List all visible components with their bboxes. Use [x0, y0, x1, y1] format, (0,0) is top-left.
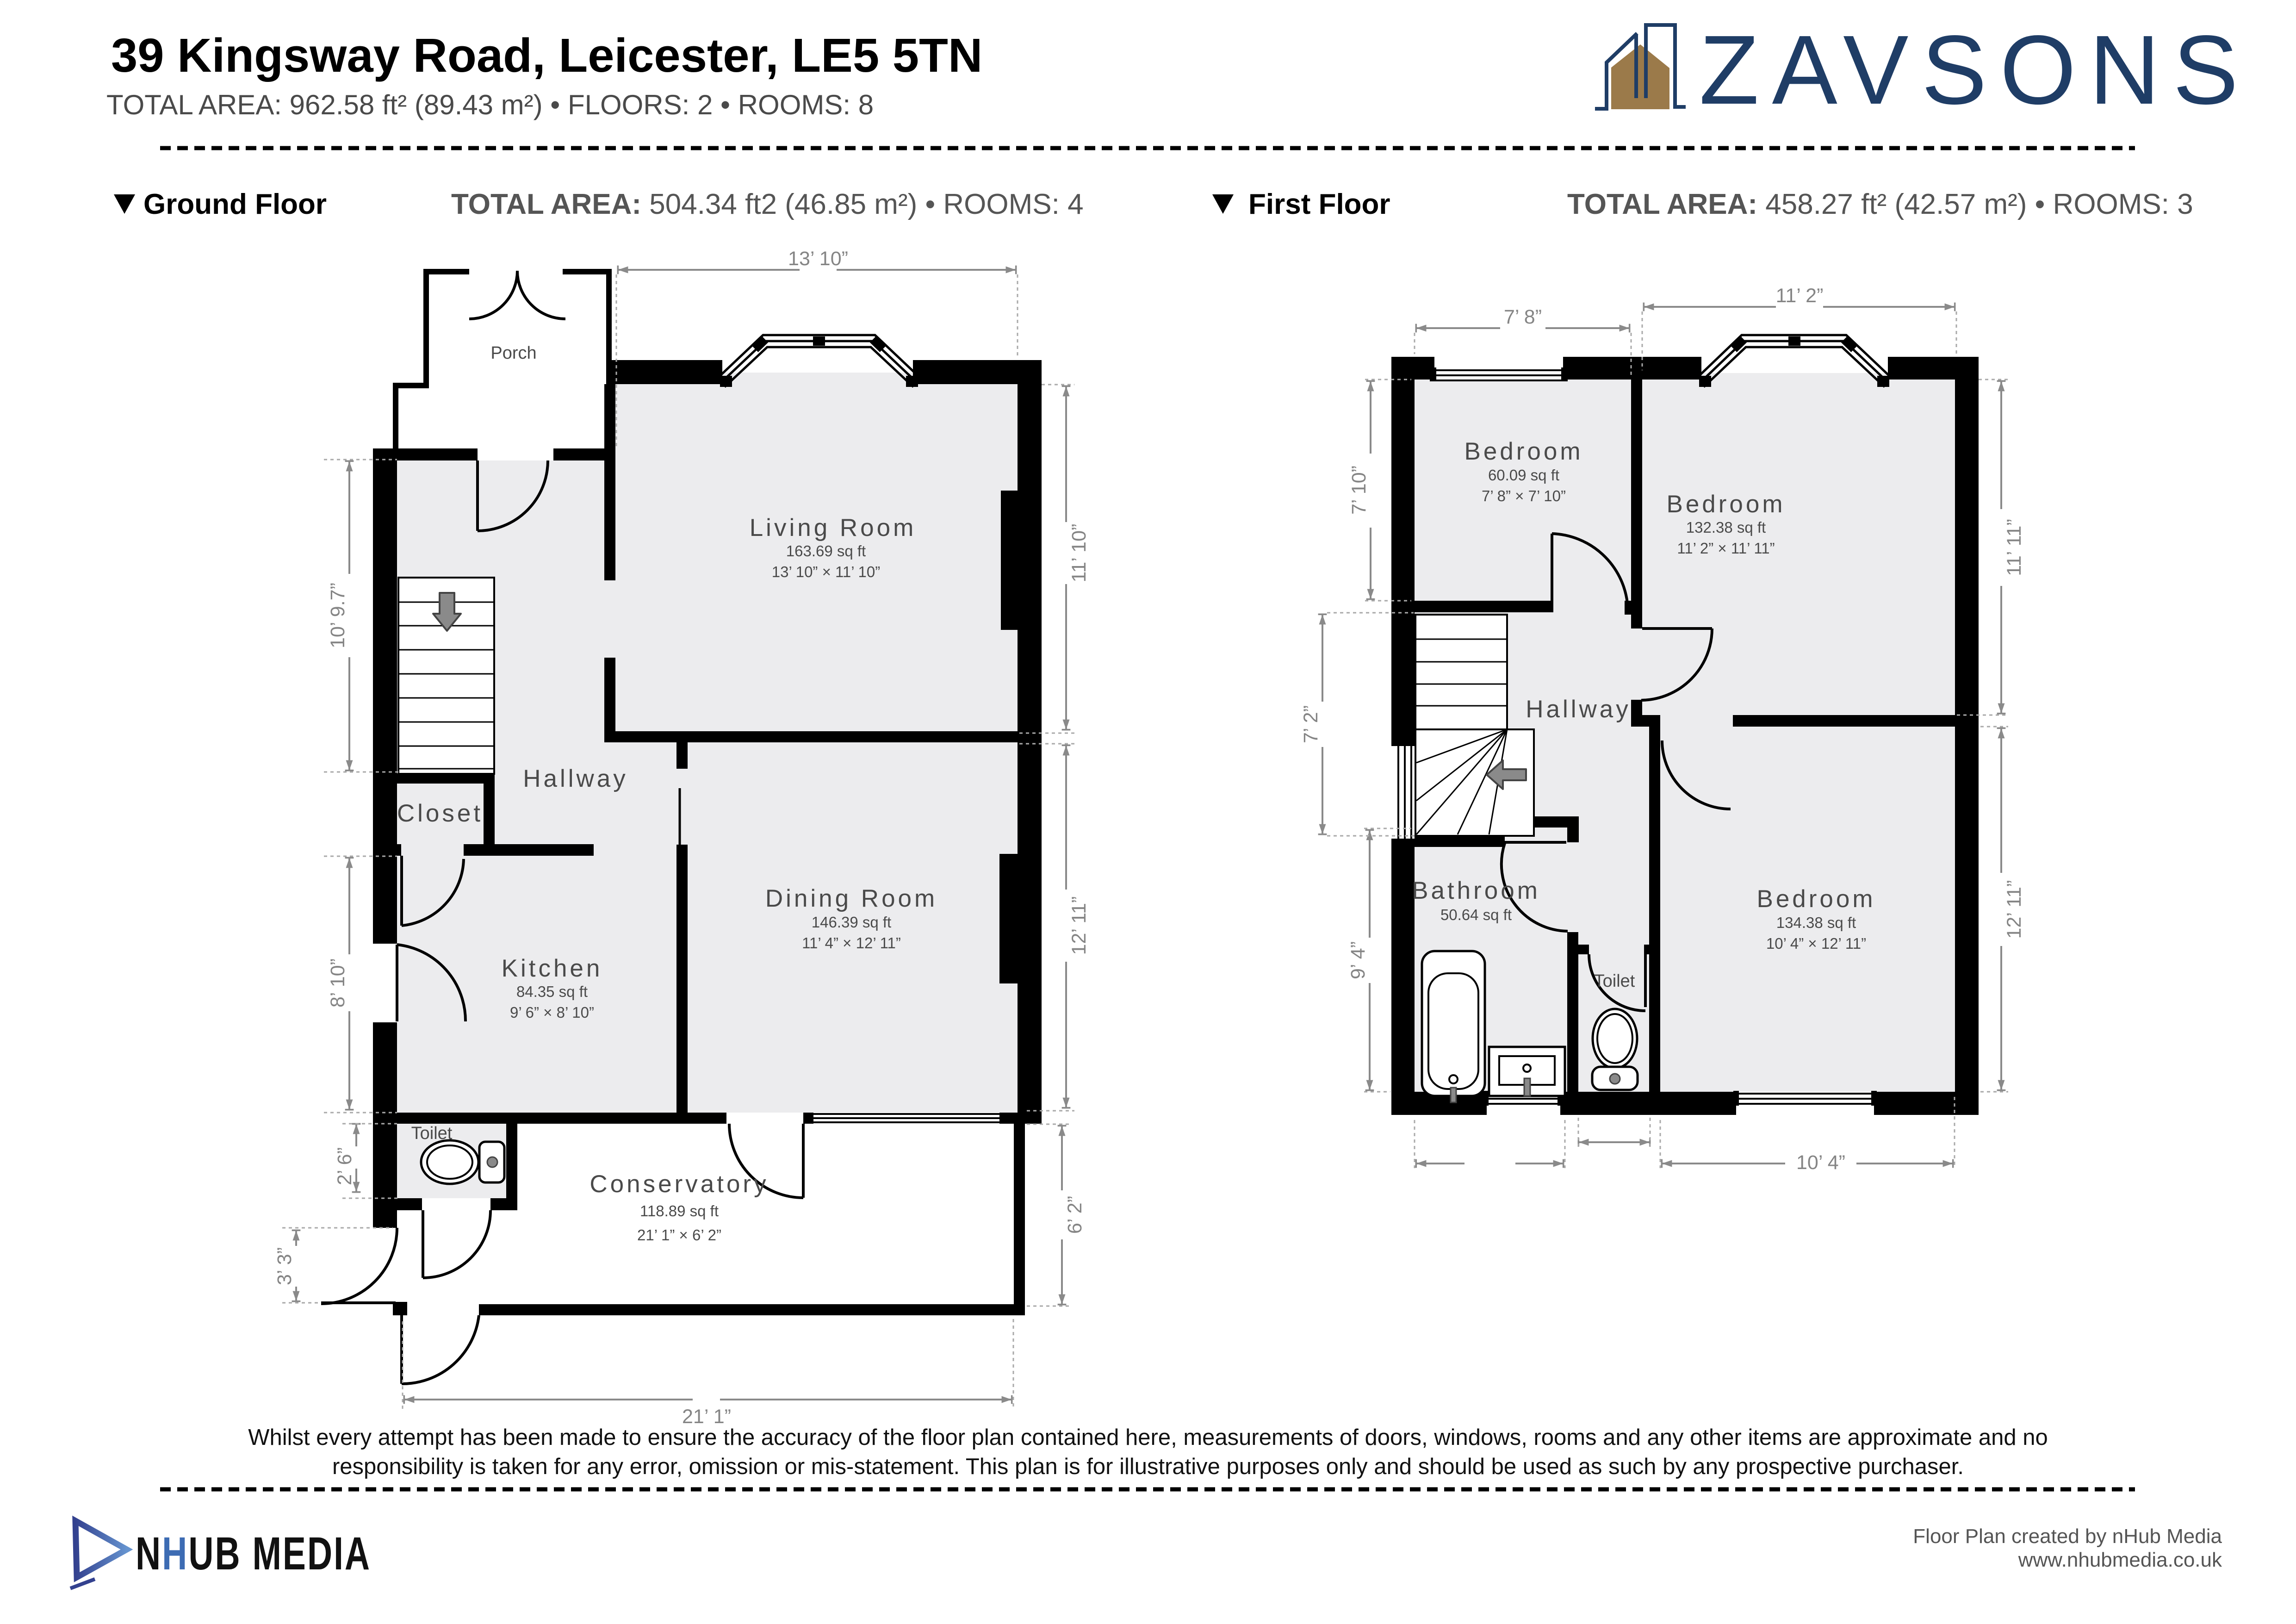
- svg-text:Porch: Porch: [490, 343, 536, 363]
- svg-text:10’ 9.7”: 10’ 9.7”: [327, 583, 349, 648]
- svg-text:Toilet: Toilet: [1594, 971, 1635, 991]
- svg-text:84.35 sq ft: 84.35 sq ft: [516, 983, 588, 1000]
- svg-text:Hallway: Hallway: [1526, 696, 1631, 723]
- svg-text:Closet: Closet: [397, 800, 483, 827]
- svg-text:3’ 3”: 3’ 3”: [273, 1247, 296, 1285]
- svg-text:163.69 sq ft: 163.69 sq ft: [786, 542, 866, 560]
- svg-text:11’ 2”: 11’ 2”: [1776, 285, 1824, 307]
- svg-text:146.39 sq ft: 146.39 sq ft: [812, 914, 891, 931]
- svg-text:Kitchen: Kitchen: [502, 955, 603, 982]
- svg-text:2’ 6”: 2’ 6”: [334, 1147, 356, 1185]
- svg-text:11’ 11”: 11’ 11”: [2003, 519, 2025, 576]
- svg-text:13’ 10” × 11’ 10”: 13’ 10” × 11’ 10”: [772, 563, 881, 580]
- svg-text:11’ 10”: 11’ 10”: [1068, 524, 1090, 583]
- svg-text:12’ 11”: 12’ 11”: [2003, 880, 2025, 939]
- svg-text:7’ 8” × 7’ 10”: 7’ 8” × 7’ 10”: [1482, 487, 1566, 504]
- svg-text:Bedroom: Bedroom: [1756, 885, 1875, 913]
- svg-text:7’ 2”: 7’ 2”: [1300, 705, 1322, 743]
- svg-text:TOTAL AREA: 962.58 ft² (89.43: TOTAL AREA: 962.58 ft² (89.43 m²) • FLOO…: [106, 89, 874, 120]
- svg-text:50.64 sq ft: 50.64 sq ft: [1440, 906, 1512, 923]
- svg-text:Bedroom: Bedroom: [1666, 491, 1785, 518]
- svg-text:7’ 10”: 7’ 10”: [1348, 466, 1370, 515]
- svg-text:21’ 1”: 21’ 1”: [682, 1406, 731, 1428]
- svg-text:118.89 sq ft: 118.89 sq ft: [640, 1202, 719, 1220]
- svg-text:Dining Room: Dining Room: [765, 885, 937, 912]
- svg-text:Ground Floor: Ground Floor: [143, 188, 327, 220]
- svg-text:Hallway: Hallway: [523, 765, 628, 792]
- svg-text:60.09 sq ft: 60.09 sq ft: [1488, 467, 1559, 484]
- svg-text:First Floor: First Floor: [1248, 188, 1390, 220]
- svg-text:ZAVSONS: ZAVSONS: [1699, 15, 2251, 124]
- svg-text:39 Kingsway Road, Leicester, L: 39 Kingsway Road, Leicester, LE5 5TN: [111, 29, 982, 82]
- svg-text:Whilst every attempt has been: Whilst every attempt has been made to en…: [248, 1425, 2048, 1450]
- svg-text:9’ 6” × 8’ 10”: 9’ 6” × 8’ 10”: [510, 1004, 594, 1021]
- svg-text:TOTAL AREA: 458.27 ft² (42.57: TOTAL AREA: 458.27 ft² (42.57 m²) • ROOM…: [1567, 188, 2193, 220]
- svg-text:12’ 11”: 12’ 11”: [1068, 896, 1090, 955]
- svg-text:Floor Plan created by nHub Med: Floor Plan created by nHub Media: [1913, 1525, 2222, 1548]
- svg-text:Bathroom: Bathroom: [1412, 877, 1540, 904]
- svg-text:132.38 sq ft: 132.38 sq ft: [1686, 519, 1766, 536]
- svg-text:Bedroom: Bedroom: [1464, 438, 1583, 465]
- svg-text:9’ 4”: 9’ 4”: [1347, 941, 1369, 979]
- svg-text:7’ 8”: 7’ 8”: [1504, 306, 1542, 328]
- svg-text:Toilet: Toilet: [411, 1124, 453, 1143]
- svg-text:13’ 10”: 13’ 10”: [788, 248, 848, 270]
- svg-text:Conservatory: Conservatory: [590, 1170, 769, 1198]
- svg-text:TOTAL AREA: 504.34 ft2 (46.85: TOTAL AREA: 504.34 ft2 (46.85 m²) • ROOM…: [451, 188, 1084, 220]
- svg-text:NHUB MEDIA: NHUB MEDIA: [136, 1527, 371, 1579]
- svg-text:11’ 4” × 12’ 11”: 11’ 4” × 12’ 11”: [802, 934, 901, 952]
- svg-text:Living Room: Living Room: [750, 514, 917, 541]
- svg-text:6’ 2”: 6’ 2”: [1064, 1196, 1086, 1234]
- svg-text:21’ 1” × 6’ 2”: 21’ 1” × 6’ 2”: [637, 1226, 721, 1244]
- svg-text:10’ 4”: 10’ 4”: [1796, 1151, 1845, 1174]
- svg-text:responsibility is taken for an: responsibility is taken for any error, o…: [332, 1454, 1964, 1479]
- svg-text:11’ 2” × 11’ 11”: 11’ 2” × 11’ 11”: [1677, 540, 1775, 557]
- svg-text:www.nhubmedia.co.uk: www.nhubmedia.co.uk: [2018, 1549, 2222, 1571]
- svg-text:134.38 sq ft: 134.38 sq ft: [1776, 914, 1856, 931]
- svg-text:10’ 4” × 12’ 11”: 10’ 4” × 12’ 11”: [1766, 935, 1866, 952]
- svg-text:8’ 10”: 8’ 10”: [327, 958, 349, 1008]
